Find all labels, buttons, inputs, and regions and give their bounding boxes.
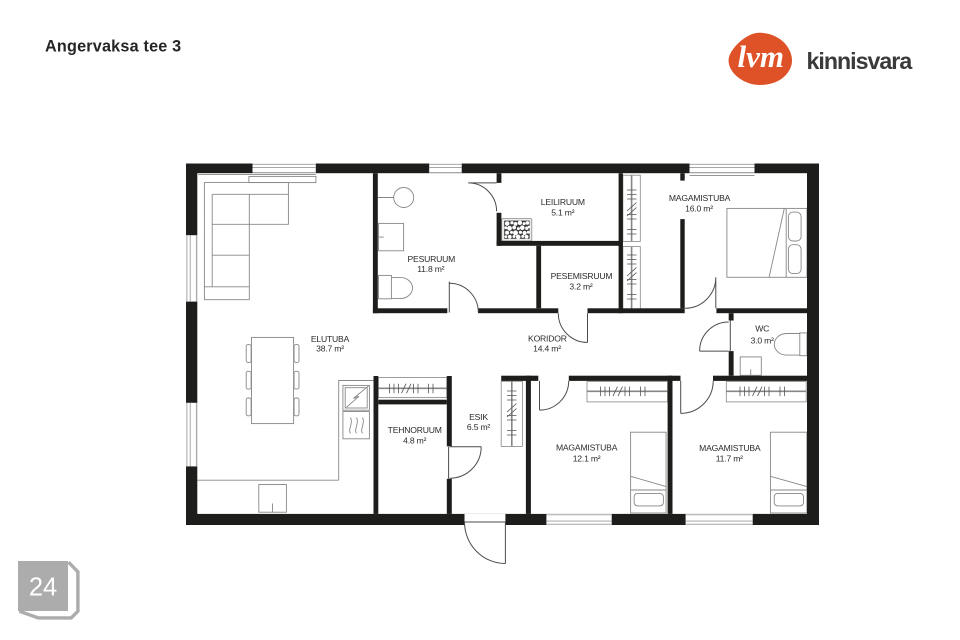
svg-text:MAGAMISTUBA: MAGAMISTUBA xyxy=(669,193,731,203)
svg-text:ESIK: ESIK xyxy=(469,412,488,422)
svg-text:KORIDOR: KORIDOR xyxy=(528,333,567,343)
svg-text:3.0 m²: 3.0 m² xyxy=(751,335,774,345)
svg-text:Angervaksa tee 3: Angervaksa tee 3 xyxy=(45,38,181,56)
svg-text:PESEMISRUUM: PESEMISRUUM xyxy=(551,271,613,281)
svg-text:MAGAMISTUBA: MAGAMISTUBA xyxy=(699,443,761,453)
svg-text:WC: WC xyxy=(755,324,769,334)
svg-text:PESURUUM: PESURUUM xyxy=(408,254,456,264)
svg-text:4.8 m²: 4.8 m² xyxy=(403,435,426,445)
svg-text:24: 24 xyxy=(29,574,57,602)
svg-text:LEILIRUUM: LEILIRUUM xyxy=(541,197,585,207)
svg-text:lvm: lvm xyxy=(738,39,785,74)
svg-text:kinnisvara: kinnisvara xyxy=(807,48,914,74)
svg-text:6.5 m²: 6.5 m² xyxy=(467,422,490,432)
svg-text:MAGAMISTUBA: MAGAMISTUBA xyxy=(556,443,618,453)
svg-text:11.8 m²: 11.8 m² xyxy=(417,264,444,274)
svg-text:5.1 m²: 5.1 m² xyxy=(551,207,574,217)
svg-text:11.7 m²: 11.7 m² xyxy=(716,454,743,464)
svg-text:12.1 m²: 12.1 m² xyxy=(573,453,601,463)
svg-text:38.7 m²: 38.7 m² xyxy=(316,344,344,354)
svg-text:14.4 m²: 14.4 m² xyxy=(533,344,561,354)
svg-text:ELUTUBA: ELUTUBA xyxy=(311,334,350,344)
svg-text:16.0 m²: 16.0 m² xyxy=(685,203,713,213)
svg-text:3.2 m²: 3.2 m² xyxy=(569,281,592,291)
svg-text:TEHNORUUM: TEHNORUUM xyxy=(388,425,442,435)
